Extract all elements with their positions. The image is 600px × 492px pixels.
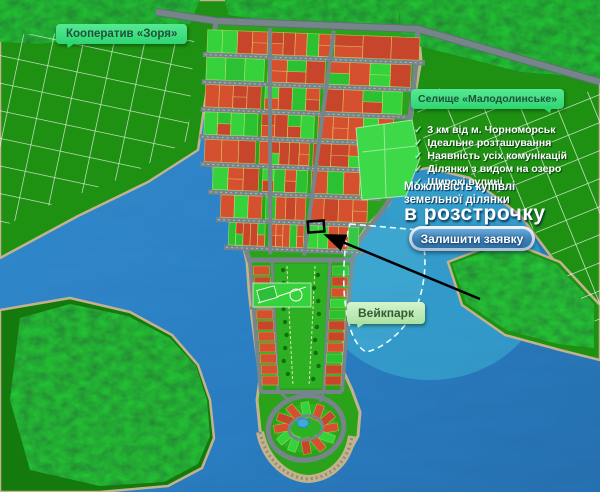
promo-map-page: Кооператив «Зоря» Селище «Малодолинське»… [0,0,600,492]
submit-request-button[interactable]: Залишити заявку [409,226,535,251]
check-icon: ✓ [414,164,422,175]
check-icon: ✓ [414,138,422,149]
feature-text: Наявність усіх комунікацій [427,150,567,162]
cooperative-label: Кооператив «Зоря» [56,24,187,44]
village-label: Селище «Малодолинське» [411,89,564,109]
installment-text: в розстрочку [404,202,546,226]
wakepark-label: Вейкпарк [347,302,425,324]
feature-item: ✓Ідеальне розташування [414,137,567,149]
feature-item: ✓3 км від м. Чорноморськ [414,124,567,136]
feature-text: Ділянки з видом на озеро [427,163,561,175]
offer-line1: Можливість купівлі [404,181,515,194]
feature-item: ✓Наявність усіх комунікацій [414,150,567,162]
feature-item: ✓Ділянки з видом на озеро [414,163,567,175]
feature-text: Ідеальне розташування [427,137,551,149]
feature-text: 3 км від м. Чорноморськ [427,124,555,136]
check-icon: ✓ [414,151,422,162]
submit-request-label: Залишити заявку [412,229,532,248]
feature-checklist: ✓3 км від м. Чорноморськ✓Ідеальне розташ… [414,124,567,189]
check-icon: ✓ [414,125,422,136]
